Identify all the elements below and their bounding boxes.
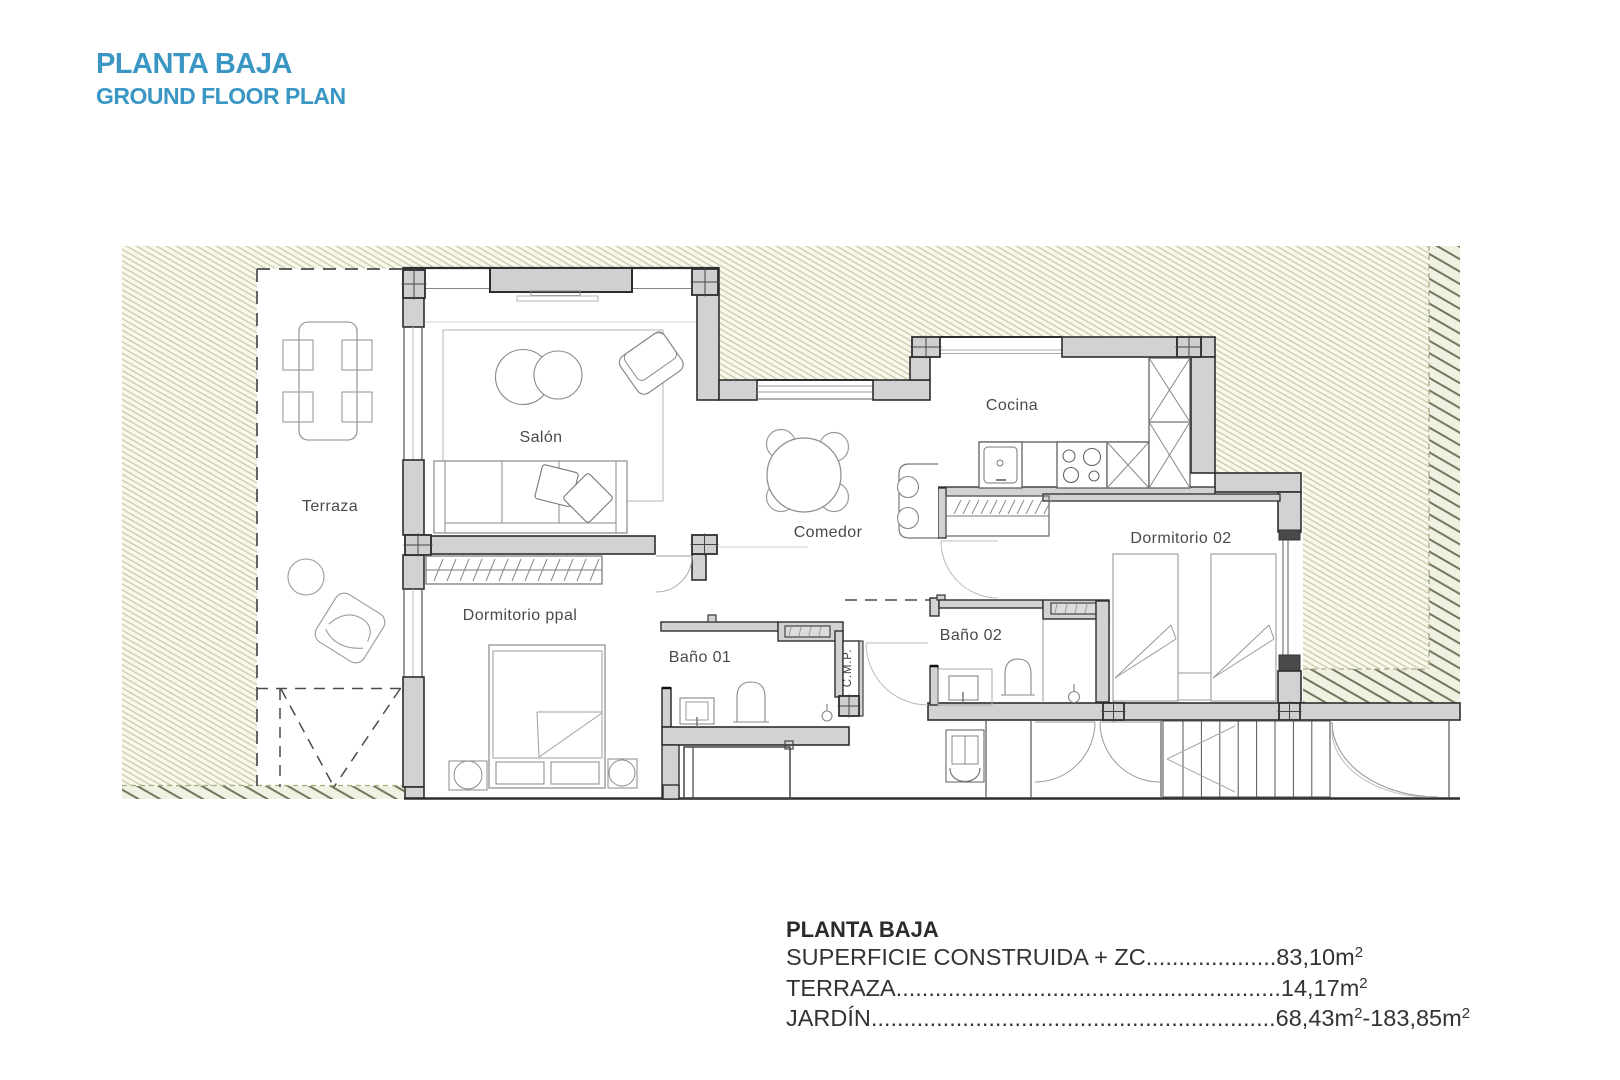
svg-text:Baño 02: Baño 02 <box>940 627 1002 644</box>
svg-text:Comedor: Comedor <box>794 524 863 541</box>
svg-text:Dormitorio ppal: Dormitorio ppal <box>463 607 577 624</box>
svg-text:JARDÍN........................: JARDÍN..................................… <box>786 1005 1470 1031</box>
svg-text:Dormitorio 02: Dormitorio 02 <box>1130 530 1231 547</box>
svg-text:Cocina: Cocina <box>986 397 1038 414</box>
svg-text:PLANTA BAJA: PLANTA BAJA <box>96 48 292 80</box>
svg-text:PLANTA BAJA: PLANTA BAJA <box>786 917 939 942</box>
svg-text:C.M.P.: C.M.P. <box>842 649 854 687</box>
svg-text:Baño 01: Baño 01 <box>669 649 731 666</box>
svg-text:Terraza: Terraza <box>302 498 358 515</box>
svg-text:SUPERFICIE CONSTRUIDA + ZC....: SUPERFICIE CONSTRUIDA + ZC..............… <box>786 944 1363 970</box>
svg-text:GROUND FLOOR PLAN: GROUND FLOOR PLAN <box>96 83 346 109</box>
svg-text:TERRAZA.......................: TERRAZA.................................… <box>786 975 1368 1001</box>
svg-text:Salón: Salón <box>520 429 563 446</box>
